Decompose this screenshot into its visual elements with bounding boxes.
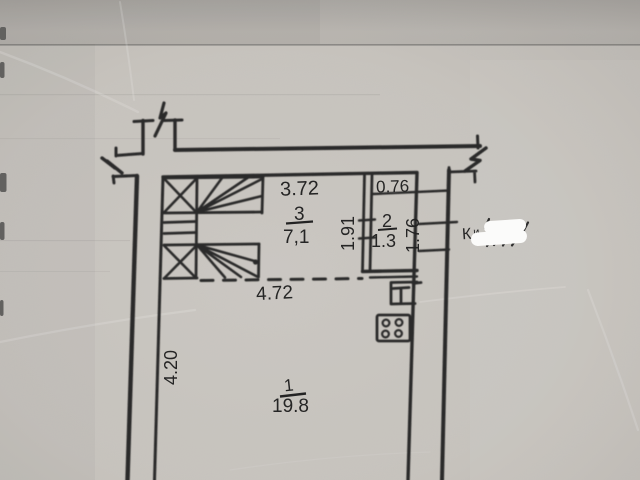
svg-text:4.20: 4.20 — [161, 350, 181, 385]
svg-text:1.3: 1.3 — [371, 231, 396, 251]
svg-text:2: 2 — [382, 211, 392, 231]
svg-text:1.91: 1.91 — [338, 216, 358, 251]
svg-text:3.72: 3.72 — [280, 177, 320, 200]
svg-text:1.76: 1.76 — [403, 218, 423, 253]
svg-text:1: 1 — [283, 375, 294, 395]
svg-text:19.8: 19.8 — [272, 396, 309, 417]
svg-text:4.72: 4.72 — [256, 282, 294, 305]
svg-text:7,1: 7,1 — [283, 227, 309, 248]
svg-text:0.76: 0.76 — [376, 177, 410, 197]
